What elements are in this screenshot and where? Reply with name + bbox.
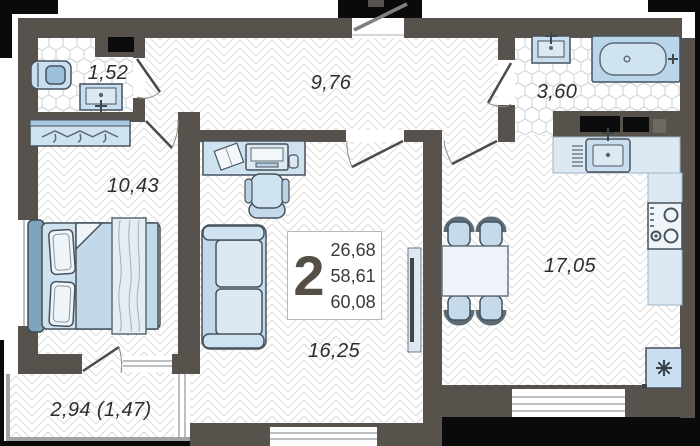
fridge-snowflake-icon — [656, 360, 672, 376]
dining-chair — [446, 296, 472, 323]
vent-shaft-2 — [580, 116, 620, 132]
office-chair — [245, 174, 289, 218]
room-label-bathroom: 3,60 — [507, 81, 607, 104]
window-balcony-top — [123, 356, 172, 372]
desk — [203, 141, 305, 175]
window-balcony-side — [174, 374, 190, 438]
vent-shaft-3 — [623, 117, 649, 132]
dining-chair — [478, 219, 504, 246]
window-living — [270, 427, 377, 446]
bed-throw — [112, 218, 146, 334]
area-value-1: 26,68 — [331, 237, 376, 263]
pillow — [48, 229, 75, 275]
vent-shaft-4 — [653, 119, 666, 133]
room-label-bedroom: 10,43 — [83, 175, 183, 198]
bed — [28, 218, 160, 334]
room-label-kitchen: 17,05 — [520, 255, 620, 278]
bathroom-sink — [532, 31, 570, 63]
room-label-laundry: 1,52 — [58, 62, 158, 85]
dining-chair — [478, 296, 504, 323]
rooms-count: 2 — [293, 248, 324, 304]
stove — [648, 203, 682, 249]
tv-panel — [408, 248, 421, 352]
window-kitchen — [512, 389, 625, 417]
area-stats: 26,68 58,61 60,08 — [331, 237, 376, 315]
bathtub — [592, 36, 680, 82]
fridge — [642, 348, 682, 388]
apartment-info-card: 2 26,68 58,61 60,08 — [287, 231, 382, 320]
area-value-3: 60,08 — [331, 289, 376, 315]
area-value-2: 58,61 — [331, 263, 376, 289]
cup — [289, 155, 298, 168]
laptop — [246, 144, 288, 170]
dining-chair — [446, 219, 472, 246]
entrance-header — [368, 0, 384, 7]
floor-plan: 1,52 9,76 3,60 10,43 17,05 16,25 2,94 (1… — [0, 0, 700, 446]
wardrobe — [30, 120, 130, 146]
pillow — [49, 281, 75, 326]
tv-icon — [410, 258, 414, 342]
room-label-balcony: 2,94 (1,47) — [31, 399, 171, 422]
room-label-hallway: 9,76 — [281, 72, 381, 95]
sofa — [202, 225, 266, 349]
vent-shaft-1 — [108, 37, 134, 52]
room-label-living: 16,25 — [284, 340, 384, 363]
dining-table — [442, 246, 508, 296]
laundry-sink — [80, 84, 122, 112]
